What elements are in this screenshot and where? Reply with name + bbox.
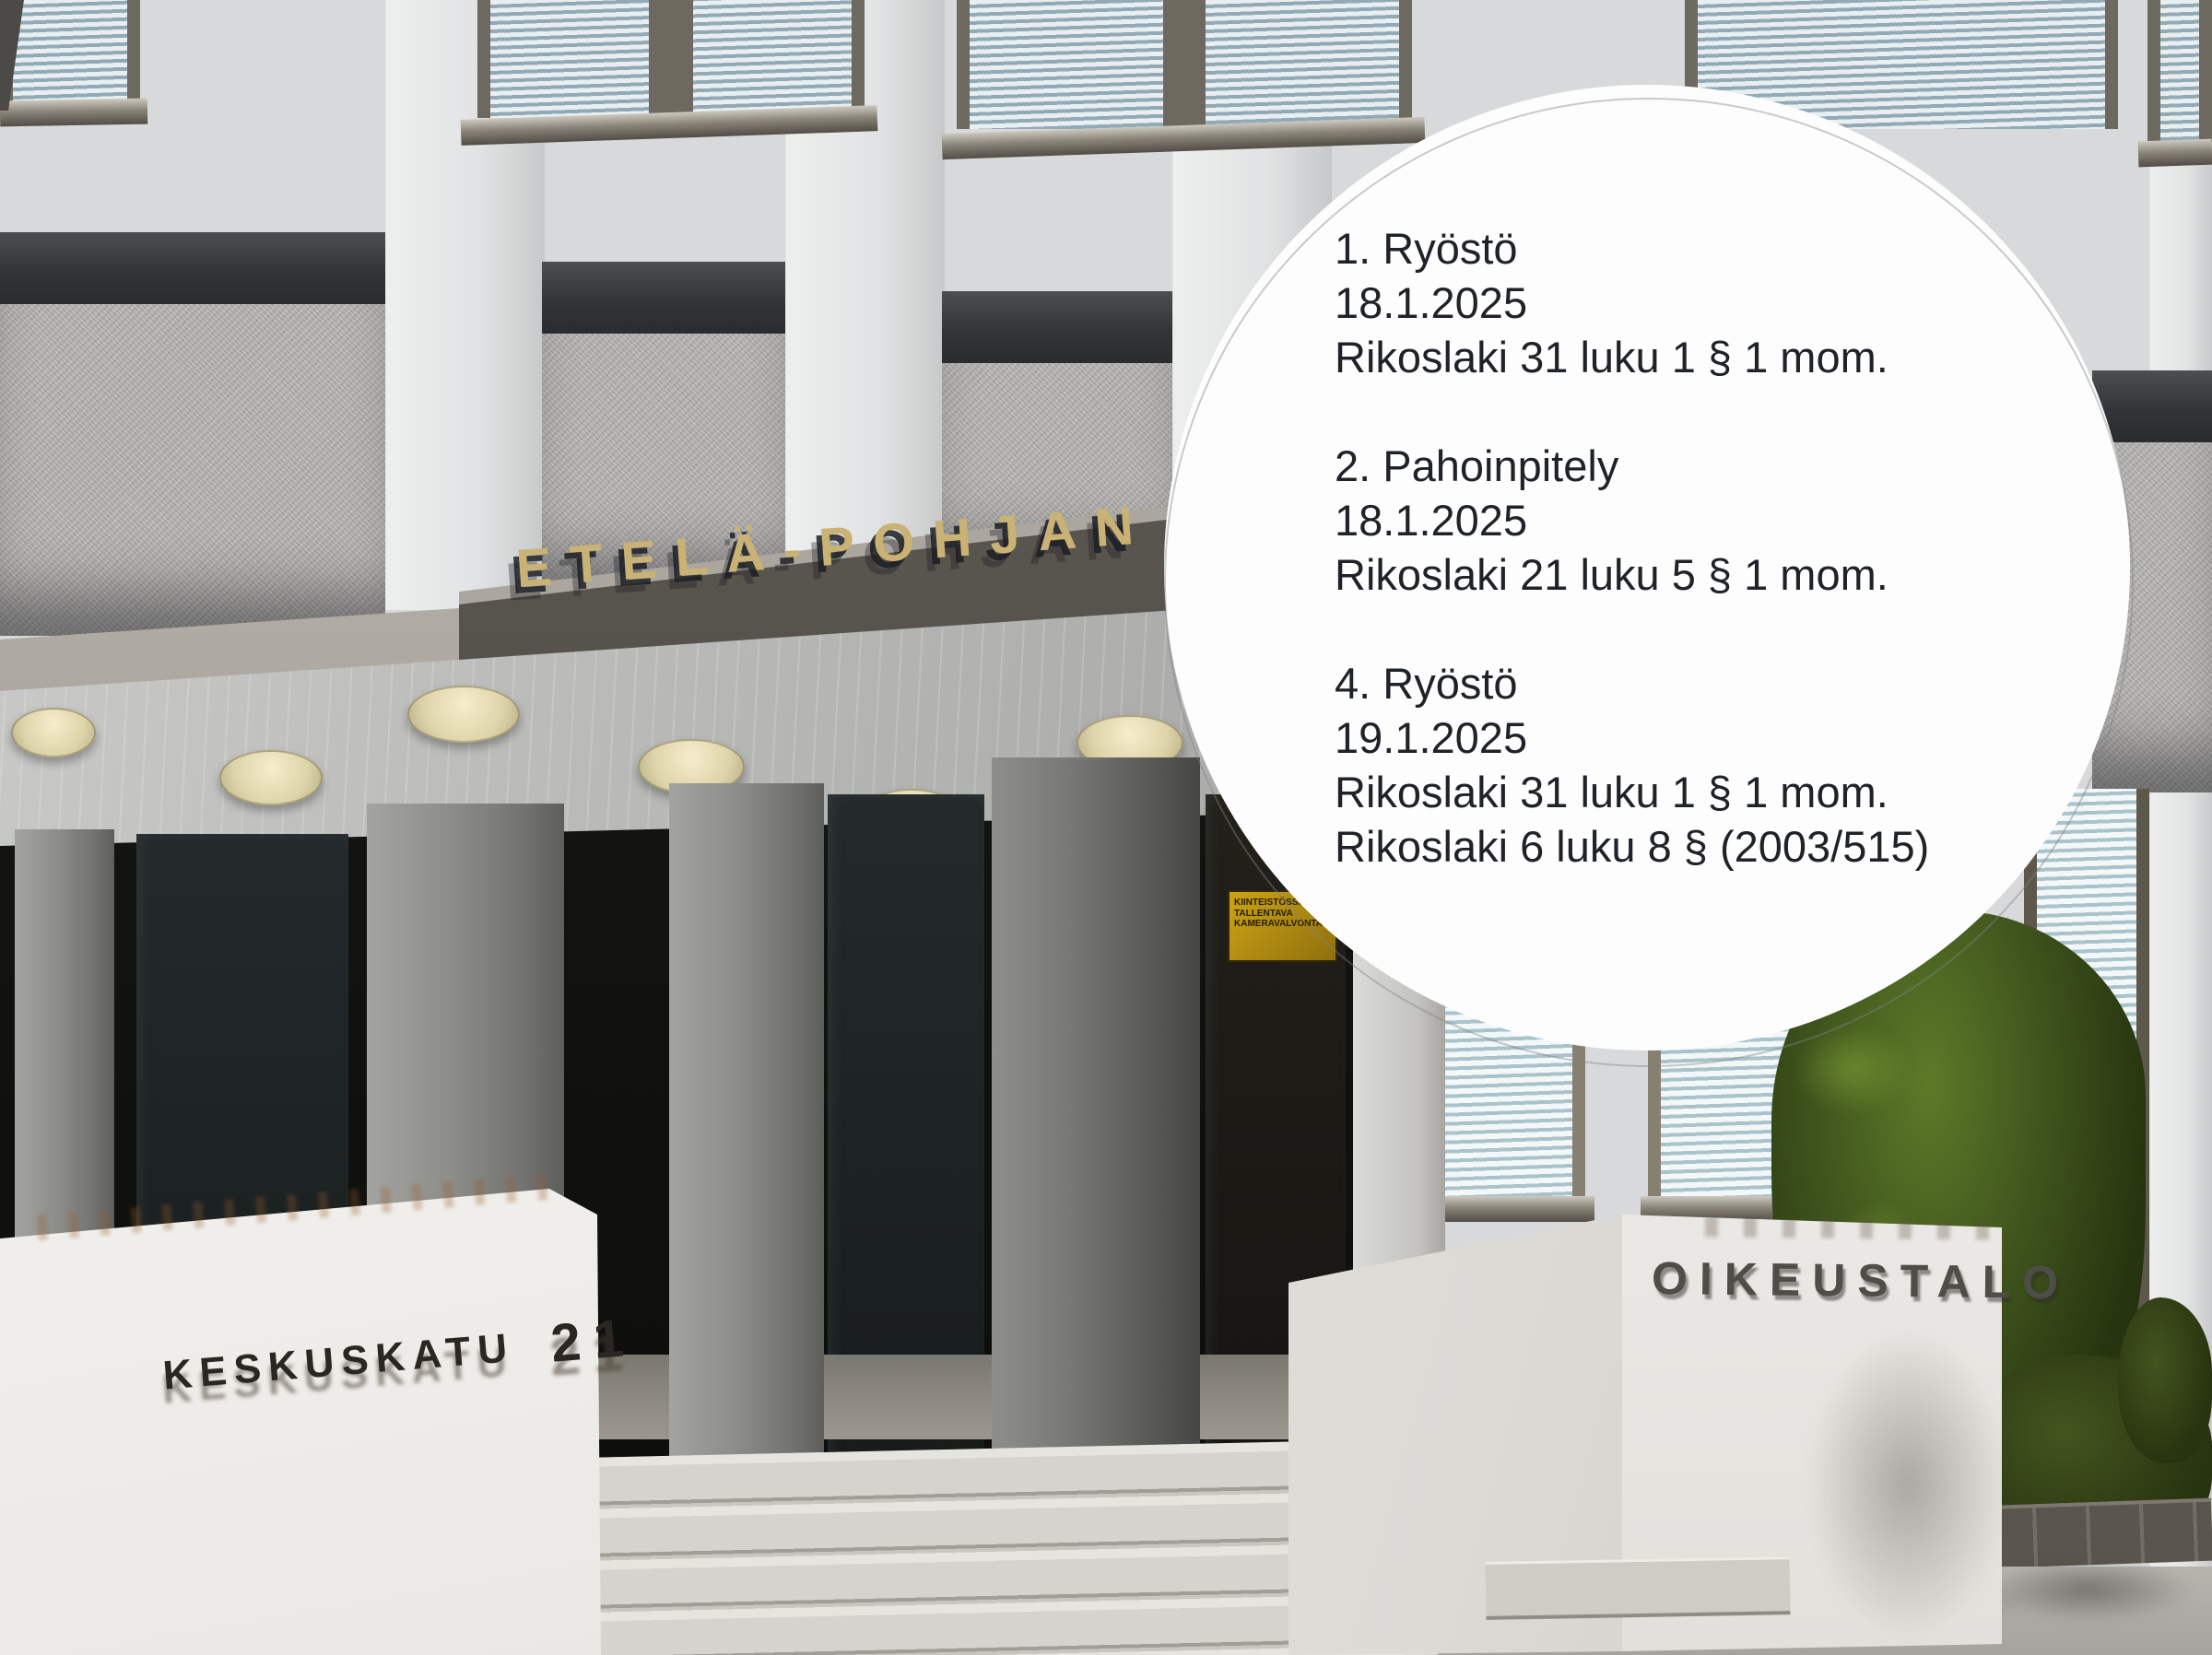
charge-title: 4. Ryöstö [1335,656,1929,710]
facade-granite-panel [0,304,385,636]
tree-shadow [1982,1557,2194,1622]
window [957,0,1412,129]
charge-law: Rikoslaki 6 luku 8 § (2003/515) [1335,819,1929,874]
facade-dark-band [942,291,1172,365]
charge-item: 2. Pahoinpitely 18.1.2025 Rikoslaki 21 l… [1335,439,1929,602]
charge-title: 1. Ryöstö [1335,221,1929,276]
ceiling-lamp [11,708,96,757]
window [2147,0,2212,143]
ceiling-lamp [219,750,323,805]
courthouse-photo: ETELÄ-POHJAN KIINTEISTÖSSÄ TALLENTAVA KA… [0,0,2212,1655]
charge-law: Rikoslaki 31 luku 1 § 1 mom. [1335,765,1929,819]
window-sill [0,99,147,127]
building-sign: OIKEUSTALO [1652,1251,1984,1309]
charge-law: Rikoslaki 21 luku 5 § 1 mom. [1335,547,1929,602]
camera-warning-line: KAMERAVALVONTA [1234,919,1312,930]
charge-date: 18.1.2025 [1335,493,1929,547]
charge-list: 1. Ryöstö 18.1.2025 Rikoslaki 31 luku 1 … [1335,221,1929,928]
window-blinds [13,0,127,103]
street-number: 21 [548,1307,638,1373]
window-mullion [1163,0,1206,129]
facade-dark-band [542,262,785,335]
bush [2118,1297,2212,1463]
ceiling-lamp [407,686,520,743]
charge-date: 18.1.2025 [1335,276,1929,330]
charge-title: 2. Pahoinpitely [1335,439,1929,493]
wall-stain [1705,1216,2000,1239]
charge-item: 1. Ryöstö 18.1.2025 Rikoslaki 31 luku 1 … [1335,221,1929,384]
front-step [1485,1556,1790,1620]
window-mullion [649,0,693,118]
charge-date: 19.1.2025 [1335,710,1929,765]
tree-shadow-on-wall [1806,1327,2009,1640]
charge-law: Rikoslaki 31 luku 1 § 1 mom. [1335,330,1929,384]
facade-dark-band [0,232,385,306]
charge-item: 4. Ryöstö 19.1.2025 Rikoslaki 31 luku 1 … [1335,656,1929,874]
window-sill [2138,139,2212,168]
window-blinds [2160,0,2199,143]
window [477,0,865,118]
